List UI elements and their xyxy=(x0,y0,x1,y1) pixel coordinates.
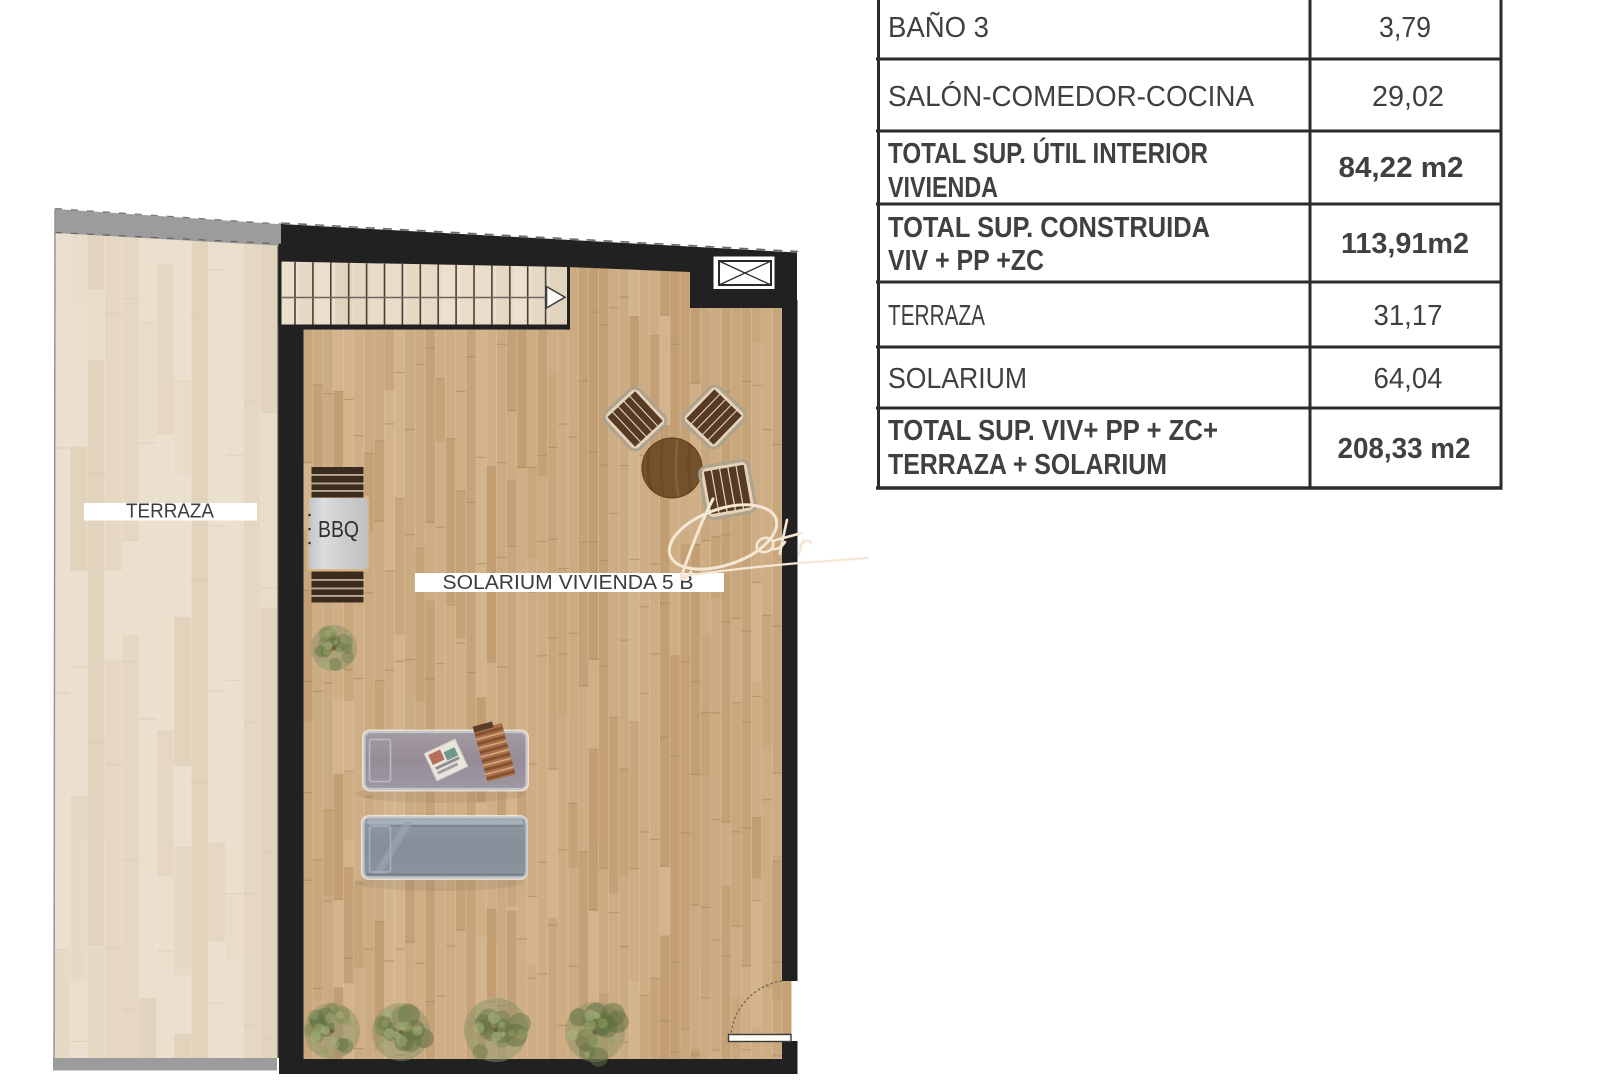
svg-text:SOLARIUM: SOLARIUM xyxy=(888,363,1027,395)
svg-text:TERRAZA + SOLARIUM: TERRAZA + SOLARIUM xyxy=(888,449,1167,481)
svg-text:SOLARIUM VIVIENDA 5 B: SOLARIUM VIVIENDA 5 B xyxy=(443,572,694,594)
svg-text:TOTAL SUP. CONSTRUIDA: TOTAL SUP. CONSTRUIDA xyxy=(888,212,1210,244)
svg-text:29,02: 29,02 xyxy=(1372,81,1444,113)
svg-text:VIVIENDA: VIVIENDA xyxy=(888,172,998,204)
svg-text:84,22 m2: 84,22 m2 xyxy=(1339,152,1464,184)
svg-text:TOTAL SUP. VIV+ PP + ZC+: TOTAL SUP. VIV+ PP + ZC+ xyxy=(888,415,1218,447)
svg-text:SALÓN-COMEDOR-COCINA: SALÓN-COMEDOR-COCINA xyxy=(888,80,1255,113)
svg-text:113,91m2: 113,91m2 xyxy=(1341,228,1469,260)
svg-text:64,04: 64,04 xyxy=(1374,363,1443,395)
svg-text:BBQ: BBQ xyxy=(318,516,359,542)
svg-text:31,17: 31,17 xyxy=(1374,300,1443,332)
svg-text:3,79: 3,79 xyxy=(1379,12,1431,44)
svg-text:VIV + PP +ZC: VIV + PP +ZC xyxy=(888,245,1044,277)
svg-text:TERRAZA: TERRAZA xyxy=(888,300,985,332)
svg-text:TOTAL SUP. ÚTIL INTERIOR: TOTAL SUP. ÚTIL INTERIOR xyxy=(888,136,1208,170)
svg-text:208,33 m2: 208,33 m2 xyxy=(1338,433,1471,465)
svg-text:TERRAZA: TERRAZA xyxy=(126,501,215,523)
svg-text:BAÑO 3: BAÑO 3 xyxy=(888,10,989,44)
